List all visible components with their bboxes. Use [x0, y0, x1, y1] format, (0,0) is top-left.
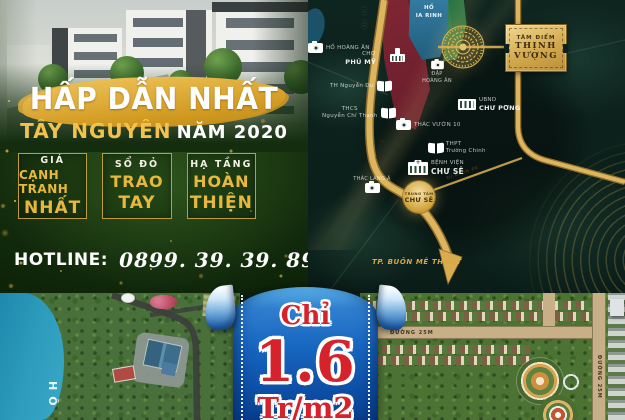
lake-label-line2: IA RINH — [406, 12, 452, 20]
feature-bottom: NHẤT — [24, 198, 81, 218]
subheadline-region: TÂY NGUYÊN — [20, 119, 171, 143]
direction-arrow — [439, 249, 462, 284]
poi-sublabel: CHỢ — [362, 51, 376, 57]
poi-sublabel: BỆNH VIỆN — [431, 160, 464, 166]
badge-notch — [504, 44, 509, 53]
poi-sublabel: ĐẬP — [431, 71, 442, 77]
destination-label: TP. BUÔN MÊ THUỘT — [372, 258, 462, 266]
poi-thac-vuon-10: THÁC VƯỜN 10 — [396, 120, 461, 130]
park-ring-path — [560, 371, 582, 393]
camera-icon — [431, 61, 444, 70]
road-label-ql14-top: QL 14 — [361, 7, 368, 29]
street — [543, 293, 555, 326]
poi-label: THÁC VƯỜN 10 — [414, 122, 461, 128]
lake-label-line1: HỒ — [406, 4, 452, 12]
book-icon — [381, 108, 396, 118]
lake-label: HỒ IA RINH — [406, 4, 452, 21]
prosperity-badge: TÂM ĐIỂM THỊNH VƯỢNG — [505, 24, 567, 72]
poi-th-nguyen-du: TH Nguyễn Du — [330, 81, 392, 91]
poi-thpt-truong-chinh: THPT Trường Chinh — [428, 141, 486, 154]
book-icon — [428, 143, 443, 153]
poi-label: CHƯ SÊ — [431, 167, 464, 176]
clubhouse-wing — [161, 362, 177, 377]
poi-ubnd-chu-pong: UBND CHƯ PƠNG — [458, 97, 521, 112]
hotline: HOTLINE: 0899. 39. 39. 89 — [14, 248, 304, 272]
feature-mid: CẠNH TRANH — [19, 168, 86, 196]
feature-bottom: THIỆN — [190, 193, 253, 213]
feature-box-infrastructure: HẠ TẦNG HOÀN THIỆN — [187, 153, 256, 219]
gazebo — [121, 293, 135, 303]
badge-notch — [563, 44, 568, 53]
chu-se-center-marker: TRUNG TÂM CHƯ SÊ — [403, 181, 435, 213]
hotline-number: 0899. 39. 39. 89 — [119, 248, 308, 272]
poi-sublabel: UBND — [479, 97, 496, 103]
price-ribbon: Chỉ 1.6 Tr/m2 — [200, 285, 412, 420]
flower-garden — [150, 295, 177, 309]
poi-label: CHƯ PƠNG — [479, 104, 521, 112]
ribbon-curl-right — [375, 285, 409, 332]
street-label-vertical: ĐƯỜNG 25M — [596, 355, 602, 399]
feature-box-price: GIÁ CẠNH TRANH NHẤT — [18, 153, 87, 219]
feature-bottom: TAY — [118, 193, 155, 213]
white-building — [610, 299, 624, 316]
price-value: 1.6 — [233, 329, 378, 395]
poi-thcs-nguyen-chi-thanh: THCS Nguyễn Chí Thanh — [322, 106, 396, 119]
poi-benh-vien-chu-se: BỆNH VIỆN CHƯ SÊ — [408, 160, 464, 176]
feature-top: GIÁ — [40, 155, 65, 166]
poi-label: Nguyễn Chí Thanh — [322, 113, 378, 119]
left-promo-panel: HẤP DẪN NHẤT TÂY NGUYÊN NĂM 2020 GIÁ CẠN… — [0, 0, 308, 293]
feature-top: SỔ ĐỎ — [115, 159, 159, 170]
real-estate-flyer: HẤP DẪN NHẤT TÂY NGUYÊN NĂM 2020 GIÁ CẠN… — [0, 0, 625, 420]
poi-label: HOÀNG ÂN — [422, 78, 452, 84]
poi-label: Trường Chinh — [446, 148, 486, 154]
book-icon — [377, 81, 392, 91]
headline: HẤP DẪN NHẤT — [9, 82, 299, 117]
poi-dap-hoang-an: ĐẬP HOÀNG ÂN — [420, 60, 454, 84]
marker-line2: CHƯ SÊ — [405, 196, 434, 204]
camera-icon — [308, 43, 323, 53]
feature-boxes: GIÁ CẠNH TRANH NHẤT SỔ ĐỎ TRAO TAY HẠ TẦ… — [18, 153, 256, 219]
subheadline-year: NĂM 2020 — [177, 122, 288, 143]
poi-label: PHÚ MỸ — [345, 58, 376, 66]
location-map: HỒ IA RINH TÂM ĐIỂM THỊ — [308, 0, 625, 293]
camera-icon — [396, 120, 411, 130]
hospital-icon — [408, 162, 428, 175]
poi-cho-phu-my: CHỢ PHÚ MỸ — [338, 51, 376, 66]
feature-mid: HOÀN — [193, 172, 249, 191]
badge-line2: THỊNH — [515, 41, 557, 51]
poi-sublabel: THPT — [446, 141, 461, 147]
building-icon — [458, 99, 476, 110]
feature-top: HẠ TẦNG — [190, 159, 252, 170]
price-unit: Tr/m2 — [233, 391, 378, 420]
poi-label: TH Nguyễn Du — [330, 83, 374, 89]
feature-box-deed: SỔ ĐỎ TRAO TAY — [102, 153, 171, 219]
lake-vertical-label: HỒ — [46, 381, 59, 412]
feature-mid: TRAO — [110, 172, 163, 191]
church-icon — [390, 54, 405, 62]
badge-line1: TÂM ĐIỂM — [517, 35, 556, 41]
poi-sublabel: THCS — [342, 106, 358, 112]
poi-thac-lang-a: THÁC LÀNG Á — [352, 176, 392, 193]
badge-line3: VƯỢNG — [514, 51, 558, 61]
subheadline: TÂY NGUYÊN NĂM 2020 — [0, 119, 308, 143]
hotline-label: HOTLINE: — [14, 250, 108, 270]
camera-icon — [365, 183, 380, 193]
price-prefix: Chỉ — [233, 301, 378, 331]
